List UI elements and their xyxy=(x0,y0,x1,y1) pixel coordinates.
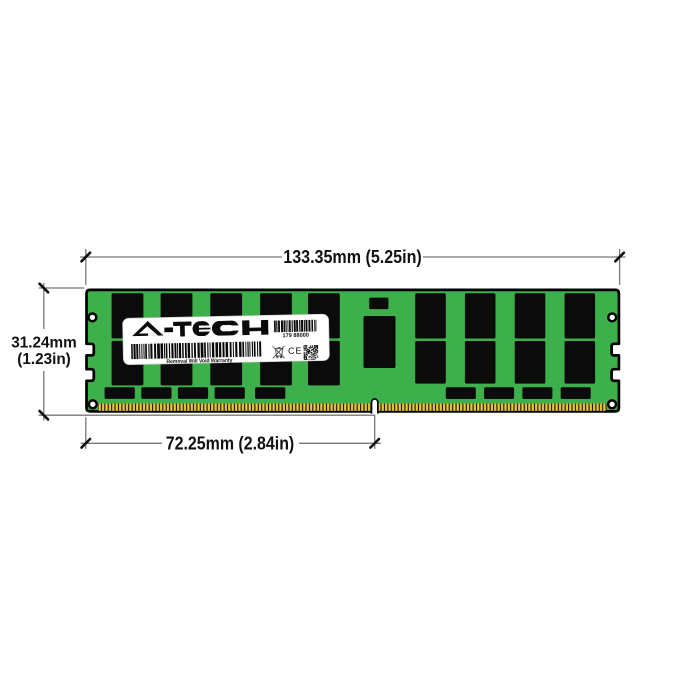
svg-text:72.25mm (2.84in): 72.25mm (2.84in) xyxy=(166,433,295,453)
svg-text:(1.23in): (1.23in) xyxy=(17,351,71,368)
svg-text:CE: CE xyxy=(288,346,303,356)
svg-text:31.24mm: 31.24mm xyxy=(11,334,76,351)
svg-text:179 88000: 179 88000 xyxy=(282,333,309,340)
svg-text:133.35mm (5.25in): 133.35mm (5.25in) xyxy=(283,247,422,267)
